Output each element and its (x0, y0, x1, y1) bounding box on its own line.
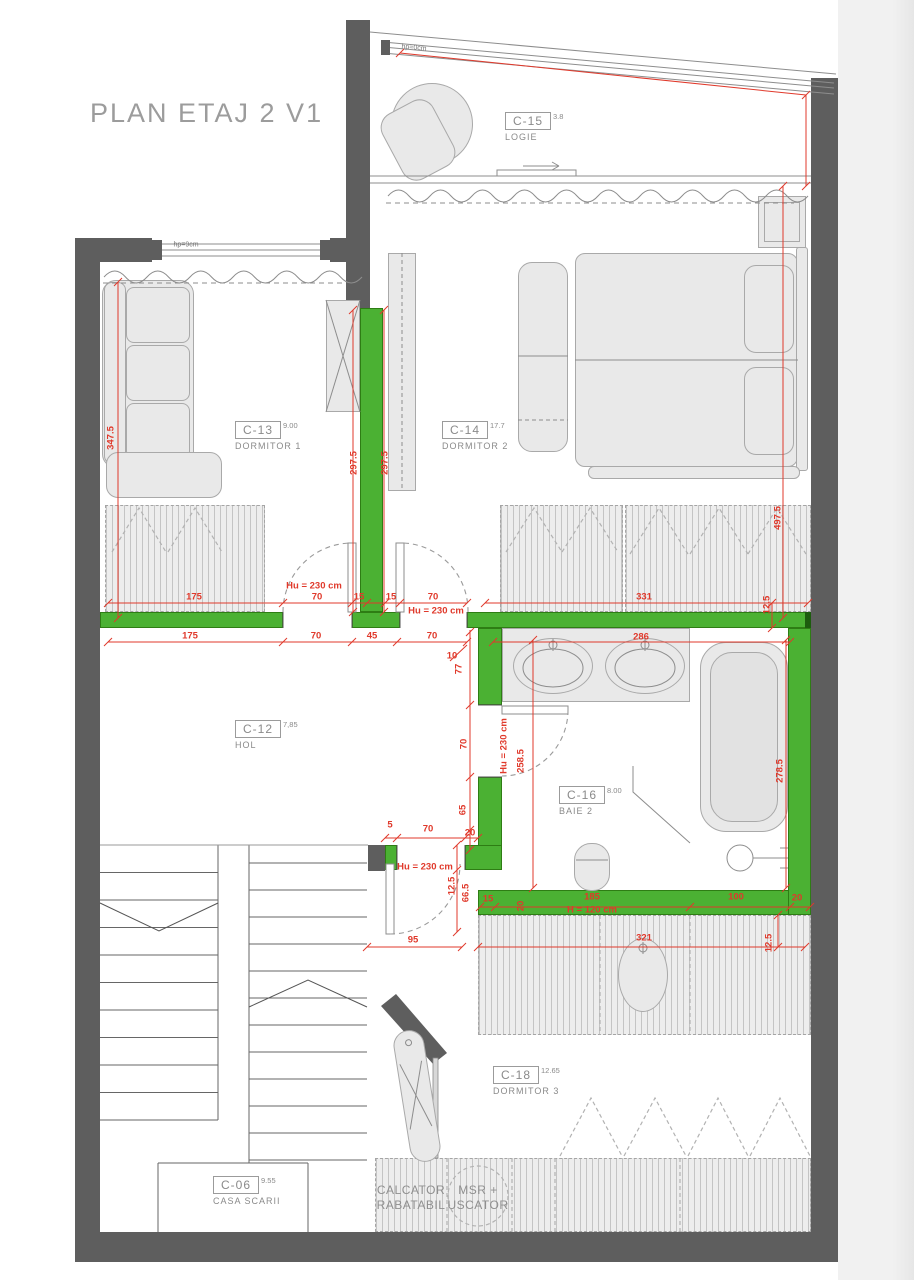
wardrobe-marks (112, 253, 810, 1232)
doors (283, 543, 568, 934)
bedroom1-window (152, 239, 330, 261)
floor-plan: PLAN ETAJ 2 V1 (0, 0, 914, 1280)
stairs (100, 845, 368, 1232)
loggia-railing (370, 32, 836, 94)
dimension-lines (104, 49, 814, 951)
curtains (103, 162, 808, 283)
plan-linework (0, 0, 914, 1280)
bedroom2-window-wall (370, 170, 811, 183)
